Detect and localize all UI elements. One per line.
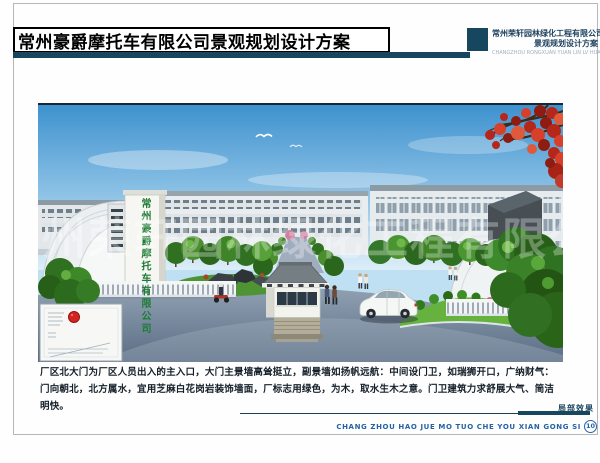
rendering-scene <box>38 105 563 362</box>
louver-panel <box>108 204 126 252</box>
design-description: 厂区北大门为厂区人员出入的主入口，大门主景墙高耸挺立，副景墙如扬帆远航：中间设门… <box>40 364 562 415</box>
title-underline-bar <box>13 52 470 58</box>
page-title: 常州豪爵摩托车有限公司景观规划设计方案 <box>15 28 351 53</box>
company-subtitle: 景观规划设计方案 <box>492 39 598 49</box>
gate-wall-vertical-text: 常州豪爵摩托车有限公司 <box>137 198 152 340</box>
site-plan-inset <box>40 304 122 361</box>
company-name-en: CHANGZHOU RONGXUAN YUAN LIN LV HUA <box>492 50 598 57</box>
perspective-rendering: 常州豪爵摩托车有限公司 常州荣轩园林绿化工程有限公司 <box>38 103 563 362</box>
design-board-page: 常州豪爵摩托车有限公司景观规划设计方案 常州荣轩园林绿化工程有限公司 景观规划设… <box>0 0 600 463</box>
pinyin-title: CHANG ZHOU HAO JUE MO TUO CHE YOU XIAN G… <box>336 423 581 431</box>
location-marker-dot <box>69 312 80 323</box>
footer-pinyin-row: CHANG ZHOU HAO JUE MO TUO CHE YOU XIAN G… <box>336 420 597 433</box>
main-title-box: 常州豪爵摩托车有限公司景观规划设计方案 <box>13 27 390 53</box>
page-number-badge: 10 <box>584 420 597 433</box>
company-block: 常州荣轩园林绿化工程有限公司 景观规划设计方案 CHANGZHOU RONGXU… <box>492 29 598 57</box>
footer-rule-thick <box>518 411 590 415</box>
header-accent-block <box>467 28 488 51</box>
company-name: 常州荣轩园林绿化工程有限公司 <box>492 29 598 39</box>
